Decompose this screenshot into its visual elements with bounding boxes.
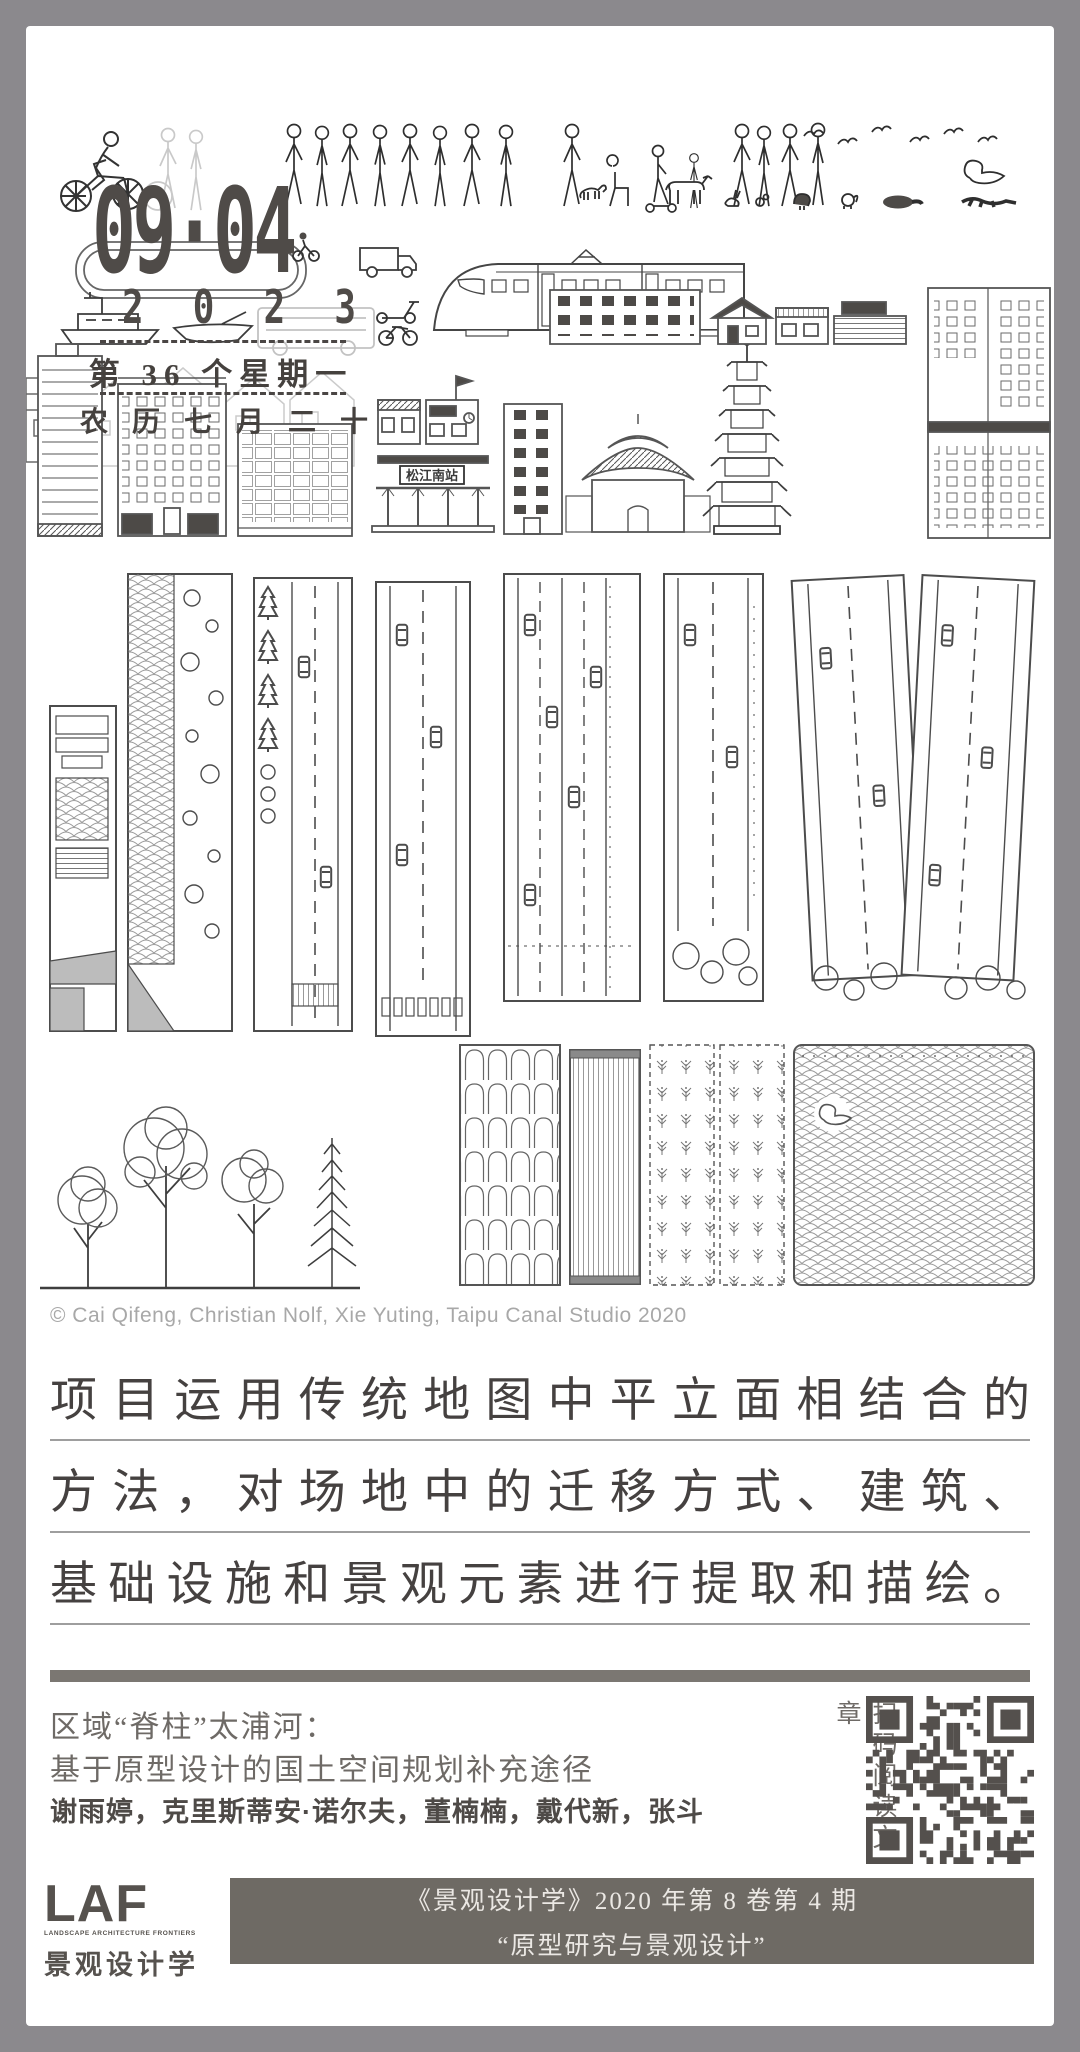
dashed-divider-bottom	[100, 392, 346, 395]
railway-station: 松江南站	[372, 456, 494, 532]
article-title-line2: 基于原型设计的国土空间规划补充途径	[50, 1745, 594, 1789]
dog	[580, 185, 606, 200]
temple-complex	[566, 414, 710, 532]
bottom-panels	[460, 1045, 1034, 1285]
quote-block: 项目运用传统地图中平立面相结合的 方法，对场地中的迁移方式、建筑、 基础设施和景…	[50, 1378, 1030, 1654]
quote-line: 基础设施和景观元素进行提取和描绘。	[50, 1562, 1030, 1625]
striped-low-building	[834, 302, 906, 344]
year-display: 2 0 2 3	[122, 284, 356, 330]
laf-logo-tagline: LANDSCAPE ARCHITECTURE FRONTIERS	[44, 1930, 224, 1937]
year-digit: 0	[193, 284, 215, 330]
laf-logo: LAF LANDSCAPE ARCHITECTURE FRONTIERS 景观设…	[44, 1882, 224, 1982]
squirrel	[842, 194, 857, 209]
shop-buildings	[378, 376, 478, 444]
article-authors: 谢雨婷，克里斯蒂安·诺尔夫，董楠楠，戴代新，张斗	[50, 1790, 704, 1829]
article-title-line1: 区域“脊柱”太浦河：	[50, 1702, 337, 1746]
sitting-person	[607, 155, 628, 206]
year-digit: 3	[334, 284, 356, 330]
poster-frame: 松江南站	[0, 0, 1080, 2052]
lined-panel	[570, 1050, 640, 1284]
beaver	[883, 196, 913, 209]
elevation-trees	[40, 1107, 360, 1288]
week-label: 第 36 个星期一	[66, 349, 376, 394]
slab-building	[238, 424, 352, 536]
office-building	[504, 404, 562, 534]
fauna-row	[580, 126, 1016, 210]
strip-7	[792, 575, 1035, 1000]
pagoda	[703, 339, 791, 534]
moped	[293, 233, 319, 262]
truck	[360, 248, 416, 277]
strip-5	[504, 574, 640, 1001]
water-panel	[794, 1045, 1034, 1285]
tree-2	[124, 1107, 207, 1288]
laf-logo-cn-name: 景观设计学	[44, 1943, 224, 1982]
tree-1	[58, 1167, 117, 1288]
laf-logo-acronym: LAF	[44, 1882, 224, 1926]
orchard-grid-panel-b	[720, 1045, 784, 1285]
year-digit: 2	[122, 284, 144, 330]
image-credit: © Cai Qifeng, Christian Nolf, Xie Yuting…	[50, 1304, 687, 1328]
issue-theme-line: “原型研究与景观设计”	[497, 1926, 766, 1962]
date-display: 09·04	[92, 172, 294, 290]
bicycle	[379, 327, 417, 345]
poster-card: 松江南站	[26, 26, 1054, 2026]
pine-tree	[308, 1138, 356, 1288]
orchard-grid-panel-a	[650, 1045, 714, 1285]
lizard	[962, 199, 1016, 207]
journal-issue-line: 《景观设计学》2020 年第 8 卷第 4 期	[406, 1881, 858, 1917]
strip-6	[664, 574, 763, 1001]
flag	[456, 376, 472, 400]
big-box-buildings	[928, 288, 1050, 538]
mid-box-building	[550, 290, 700, 344]
qr-code-image	[866, 1696, 1034, 1864]
kick-scooter	[377, 302, 419, 323]
lunar-label: 农历七月二十	[56, 400, 386, 440]
quote-line: 方法，对场地中的迁移方式、建筑、	[50, 1470, 1030, 1533]
people-row	[286, 124, 825, 213]
qr-code	[866, 1696, 1034, 1864]
quote-line: 项目运用传统地图中平立面相结合的	[50, 1378, 1030, 1441]
footer-bar: 《景观设计学》2020 年第 8 卷第 4 期 “原型研究与景观设计”	[230, 1878, 1034, 1964]
hen	[794, 194, 810, 210]
pantograph	[571, 250, 602, 264]
year-digit: 2	[264, 284, 286, 330]
goat	[666, 176, 712, 204]
tree-3	[222, 1150, 283, 1288]
station-sign: 松江南站	[406, 468, 458, 483]
dashed-divider-top	[100, 340, 346, 343]
road-section-strips	[50, 574, 1034, 1036]
strip-1	[50, 706, 116, 1031]
strip-4	[376, 582, 470, 1036]
section-divider-bar	[50, 1670, 1030, 1682]
greenhouse-arches-panel	[460, 1045, 560, 1285]
swan	[965, 161, 1004, 184]
strip-3	[254, 578, 352, 1031]
strip-2	[128, 574, 232, 1031]
awning-shop	[776, 308, 828, 344]
